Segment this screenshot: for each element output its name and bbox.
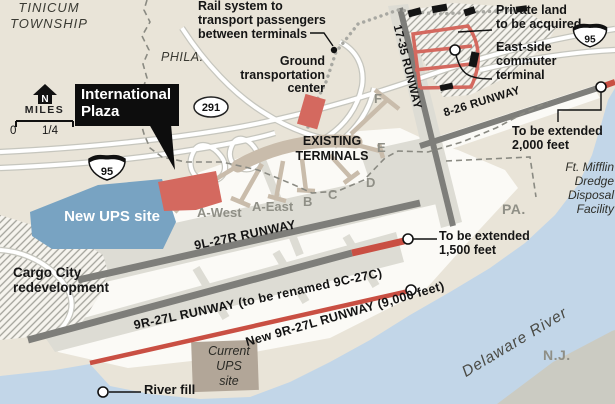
rail-point-dot	[331, 47, 337, 53]
i95-shield-west-number: 95	[101, 166, 113, 178]
label-ft-mifflin: Ft. Mifflin Dredge Disposal Facility	[539, 161, 614, 217]
note-private-land: Private land to be acquired	[496, 4, 581, 32]
route-291-number: 291	[202, 102, 220, 114]
scale-quarter-label: 1/4	[42, 125, 58, 138]
note-extend-2000: To be extended 2,000 feet	[512, 124, 603, 153]
label-terminal-b: B	[303, 194, 312, 209]
marker-ext-2000	[596, 82, 606, 92]
scale-miles-label: MILES	[17, 105, 72, 117]
note-new-ups-site: New UPS site	[52, 209, 172, 226]
label-existing-terminals: EXISTING TERMINALS	[282, 134, 382, 164]
label-terminal-a-east: A-East	[252, 199, 293, 214]
note-east-side-terminal: East-side commuter terminal	[496, 41, 556, 82]
note-ground-transportation: Ground transportation center	[225, 55, 325, 96]
label-pa: PA.	[502, 202, 526, 218]
note-river-fill: River fill	[144, 383, 195, 398]
label-phila: PHILA.	[161, 50, 204, 64]
marker-river-fill	[98, 387, 108, 397]
label-terminal-f: F	[374, 91, 382, 106]
label-tinicum-township: TINICUM TOWNSHIP	[0, 0, 98, 33]
label-terminal-a-west: A-West	[197, 205, 242, 220]
scale-zero-label: 0	[10, 125, 16, 138]
callout-international-plaza: International Plaza	[75, 84, 179, 126]
note-cargo-city: Cargo City redevelopment	[13, 265, 109, 295]
map-canvas: { "colors": { "land": "#e9e4d8", "airfie…	[0, 0, 615, 404]
label-terminal-e: E	[377, 140, 386, 155]
marker-east-side-terminal	[450, 45, 460, 55]
note-rail-system: Rail system to transport passengers betw…	[198, 0, 326, 41]
marker-ext-1500	[403, 234, 413, 244]
i95-shield-east-number: 95	[584, 34, 596, 45]
label-nj: N.J.	[543, 348, 571, 364]
label-terminal-d: D	[366, 175, 375, 190]
label-terminal-c: C	[328, 187, 337, 202]
note-extend-1500: To be extended 1,500 feet	[439, 229, 530, 258]
route-291-shield: 291	[194, 97, 228, 117]
